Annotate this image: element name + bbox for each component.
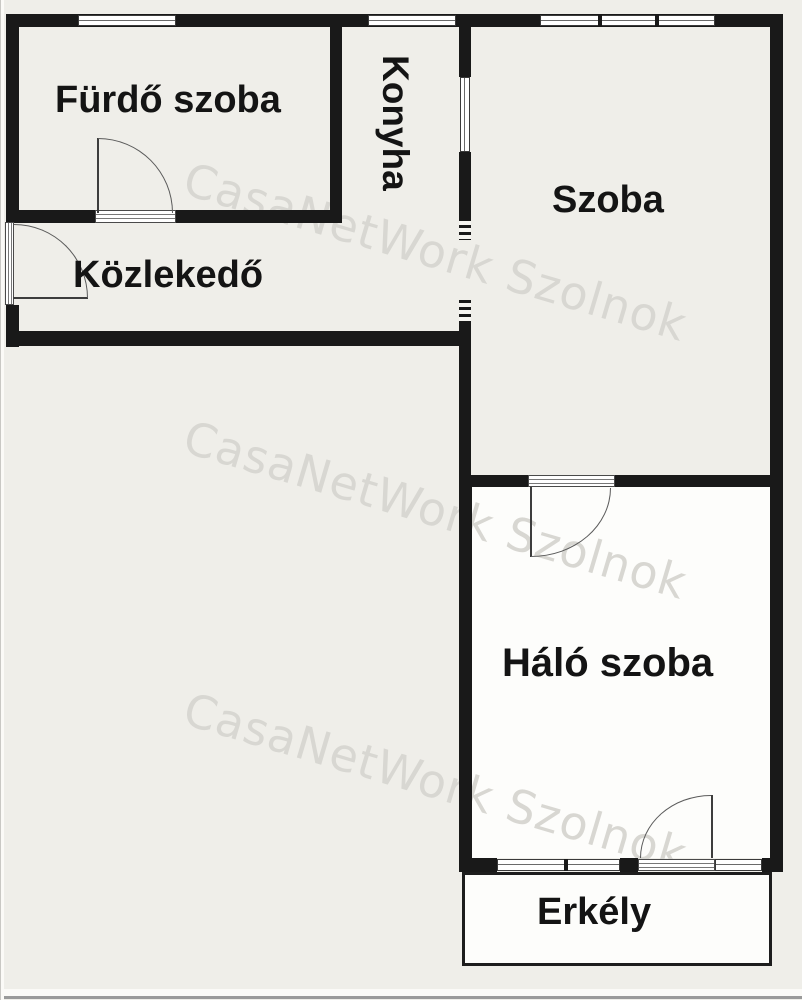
wall-left-upper bbox=[6, 14, 19, 222]
window-konyha-szoba bbox=[460, 77, 470, 152]
wall-halo-bottom-right bbox=[762, 858, 783, 872]
door-balcony-leaf bbox=[711, 795, 713, 858]
window-szoba bbox=[540, 15, 715, 26]
window-mullion bbox=[564, 859, 568, 871]
wall-szoba-halo-right bbox=[615, 475, 783, 487]
wall-halo-bottom-mullion bbox=[620, 858, 638, 872]
window-halo-right bbox=[715, 859, 762, 871]
door-entrance-sill bbox=[5, 222, 14, 305]
wall-halo-left bbox=[459, 487, 472, 872]
room-label-konyha: Konyha bbox=[377, 55, 414, 191]
wall-halo-bottom-left bbox=[459, 858, 497, 872]
wall-konyha-szoba-b bbox=[459, 152, 471, 218]
room-label-halo-szoba: Háló szoba bbox=[502, 643, 713, 683]
room-label-furdo-szoba: Fürdő szoba bbox=[55, 81, 281, 119]
window-mullion bbox=[655, 15, 659, 26]
window-furdo bbox=[78, 15, 176, 26]
scan-bottom-line bbox=[0, 996, 802, 999]
room-label-erkely: Erkély bbox=[537, 893, 651, 931]
wall-furdo-konyha bbox=[330, 14, 342, 217]
floor-plan: CasaNetWork Szolnok CasaNetWork Szolnok … bbox=[0, 0, 802, 1000]
door-szoba-halo-sill bbox=[528, 475, 615, 487]
passage-jamb-top bbox=[459, 218, 471, 240]
wall-konyha-szoba-c bbox=[459, 322, 471, 487]
window-mullion bbox=[598, 15, 602, 26]
window-konyha bbox=[368, 15, 456, 26]
door-furdo-swing-arc bbox=[98, 138, 173, 213]
wall-konyha-szoba-a bbox=[459, 14, 471, 77]
scan-left-line bbox=[0, 0, 1, 1000]
passage-jamb-bottom bbox=[459, 300, 471, 322]
door-balcony-sill bbox=[638, 859, 715, 871]
room-label-szoba: Szoba bbox=[552, 181, 664, 219]
scan-bottom-margin bbox=[0, 989, 802, 996]
window-halo-left bbox=[497, 859, 620, 871]
room-label-kozlekedo: Közlekedő bbox=[73, 256, 263, 294]
wall-szoba-halo-left bbox=[459, 475, 528, 487]
wall-right bbox=[770, 14, 783, 872]
wall-kozlekedo-bottom bbox=[6, 331, 471, 346]
